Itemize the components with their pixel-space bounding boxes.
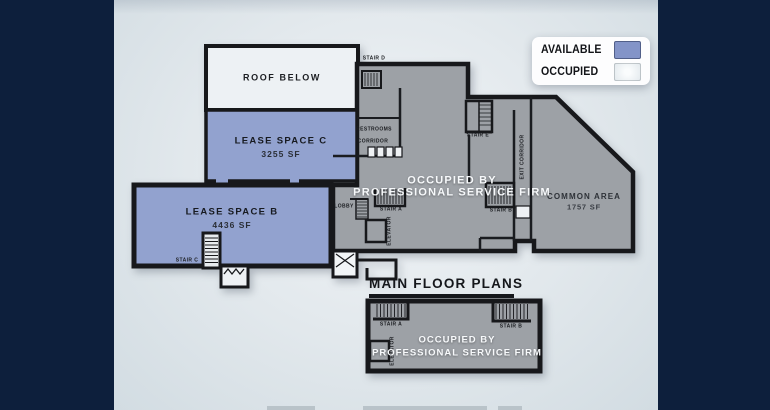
lobby-label: LOBBY — [334, 205, 354, 210]
stair-e-label: STAIR E — [467, 134, 489, 139]
lower-stair-b-label: STAIR B — [500, 325, 522, 330]
lower-occupied-by-line1: OCCUPIED BY — [419, 335, 496, 345]
main-floor-plans-title: MAIN FLOOR PLANS — [369, 276, 523, 291]
legend: AVAILABLE OCCUPIED — [532, 37, 650, 85]
common-area-name: COMMON AREA — [547, 193, 621, 201]
occupied-by-line2: PROFESSIONAL SERVICE FIRM — [353, 188, 551, 199]
lease-space-b-area: 4436 SF — [212, 221, 251, 230]
stair-c-label: STAIR C — [176, 259, 198, 264]
common-area-sf: 1757 SF — [567, 203, 601, 211]
stair-d-label: STAIR D — [363, 57, 385, 62]
elevator-shaft-icon — [366, 220, 386, 242]
legend-available-swatch — [614, 41, 641, 59]
floor-plan-page: ROOF BELOW LEASE SPACE C 3255 SF LEASE S… — [0, 0, 770, 410]
lease-space-b-name: LEASE SPACE B — [186, 207, 279, 217]
exit-corridor-door-icon — [516, 206, 530, 218]
exit-corridor-label: EXIT CORRIDOR — [521, 135, 526, 180]
lease-space-c-name: LEASE SPACE C — [235, 136, 328, 146]
lower-occupied-by-line2: PROFESSIONAL SERVICE FIRM — [372, 348, 542, 358]
legend-available-label: AVAILABLE — [541, 44, 602, 56]
lower-stair-a-label: STAIR A — [380, 323, 402, 328]
restrooms-label: RESTROOMS — [356, 128, 392, 133]
legend-row-available: AVAILABLE — [541, 41, 641, 59]
stair-b-label: STAIR B — [490, 209, 512, 214]
roof-below-label: ROOF BELOW — [243, 74, 321, 83]
stair-c-icon — [203, 233, 220, 268]
lease-space-c-area: 3255 SF — [261, 150, 300, 159]
legend-row-occupied: OCCUPIED — [541, 63, 641, 81]
entry-vestibule-icon — [221, 266, 248, 287]
legend-occupied-label: OCCUPIED — [541, 66, 598, 78]
stair-a-label: STAIR A — [380, 208, 402, 213]
title-underline — [369, 294, 514, 298]
occupied-by-line1: OCCUPIED BY — [407, 176, 497, 187]
legend-occupied-swatch — [614, 63, 641, 81]
corridor-label: CORRIDOR — [358, 140, 388, 145]
elevator-label: ELEVATOR — [388, 216, 393, 246]
door-vestibule-icon — [333, 251, 357, 277]
